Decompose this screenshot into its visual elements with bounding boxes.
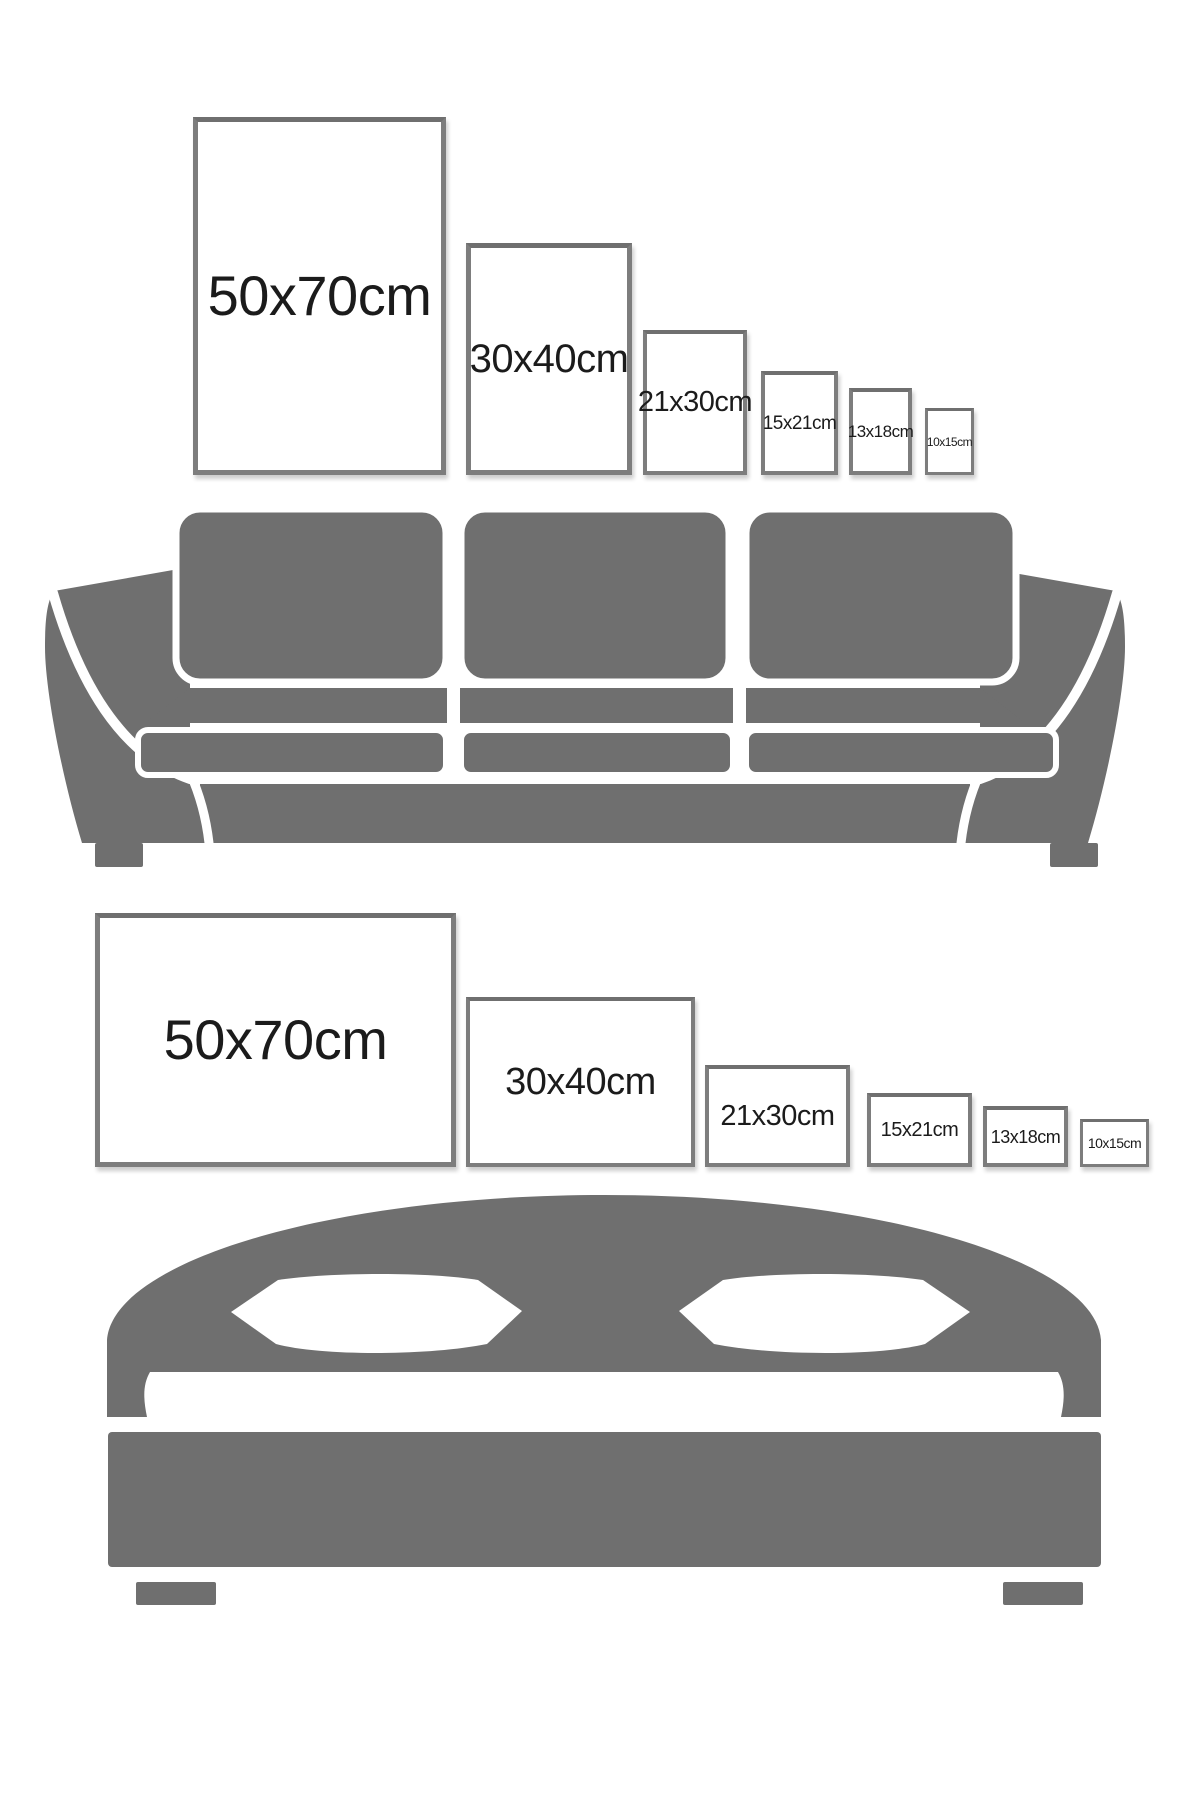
size-guide-poster: 50x70cm30x40cm21x30cm15x21cm13x18cm10x15… bbox=[0, 0, 1200, 1800]
size-label: 15x21cm bbox=[881, 1120, 959, 1140]
size-frame-13x18cm-landscape: 13x18cm bbox=[983, 1106, 1068, 1167]
size-frame-21x30cm-landscape: 21x30cm bbox=[705, 1065, 850, 1167]
size-frame-10x15cm-landscape: 10x15cm bbox=[1080, 1119, 1149, 1167]
size-frame-15x21cm-landscape: 15x21cm bbox=[867, 1093, 972, 1167]
size-frame-30x40cm-landscape: 30x40cm bbox=[466, 997, 695, 1167]
size-label: 21x30cm bbox=[720, 1102, 834, 1131]
size-label: 30x40cm bbox=[505, 1063, 656, 1101]
size-label: 13x18cm bbox=[991, 1128, 1061, 1146]
size-label: 50x70cm bbox=[164, 1012, 388, 1068]
bed-size-section: 50x70cm30x40cm21x30cm15x21cm13x18cm10x15… bbox=[0, 0, 1200, 1800]
size-label: 10x15cm bbox=[1088, 1136, 1141, 1150]
size-frame-50x70cm-landscape: 50x70cm bbox=[95, 913, 456, 1167]
